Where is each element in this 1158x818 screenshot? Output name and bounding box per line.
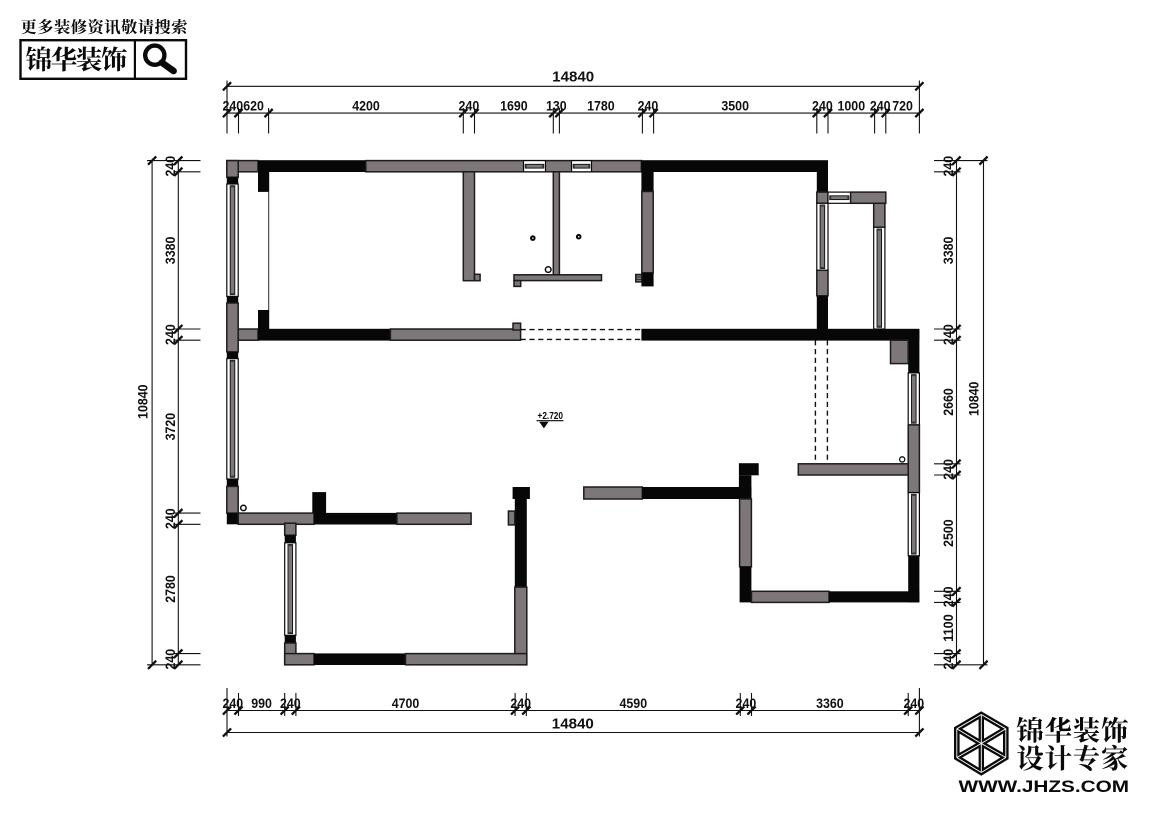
svg-text:720: 720 <box>892 98 913 113</box>
svg-text:1780: 1780 <box>587 98 615 113</box>
svg-text:3380: 3380 <box>163 237 178 265</box>
svg-text:240: 240 <box>812 98 833 113</box>
svg-text:3500: 3500 <box>721 98 749 113</box>
svg-text:240: 240 <box>941 649 956 670</box>
svg-text:WWW.JHZS.COM: WWW.JHZS.COM <box>959 777 1130 796</box>
svg-text:2780: 2780 <box>163 575 178 603</box>
svg-text:240: 240 <box>870 98 891 113</box>
svg-text:240: 240 <box>941 324 956 345</box>
svg-text:240: 240 <box>459 98 480 113</box>
svg-text:1000: 1000 <box>838 98 866 113</box>
svg-text:2660: 2660 <box>941 388 956 416</box>
svg-text:10840: 10840 <box>967 382 982 417</box>
svg-text:240: 240 <box>736 696 757 711</box>
svg-text:4200: 4200 <box>352 98 380 113</box>
svg-text:130: 130 <box>546 98 567 113</box>
svg-text:3720: 3720 <box>163 413 178 441</box>
svg-text:240: 240 <box>280 696 301 711</box>
svg-text:1690: 1690 <box>500 98 528 113</box>
svg-text:990: 990 <box>251 696 272 711</box>
svg-text:14840: 14840 <box>552 69 594 86</box>
svg-text:620: 620 <box>243 98 264 113</box>
svg-text:4590: 4590 <box>620 696 648 711</box>
svg-text:10840: 10840 <box>135 384 150 419</box>
svg-text:240: 240 <box>163 508 178 529</box>
svg-text:3380: 3380 <box>941 237 956 265</box>
svg-text:240: 240 <box>222 696 243 711</box>
svg-text:4700: 4700 <box>392 696 420 711</box>
svg-text:240: 240 <box>163 324 178 345</box>
svg-text:240: 240 <box>941 459 956 480</box>
svg-text:240: 240 <box>163 649 178 670</box>
svg-text:240: 240 <box>510 696 531 711</box>
svg-text:240: 240 <box>222 98 243 113</box>
svg-text:240: 240 <box>903 696 924 711</box>
svg-text:3360: 3360 <box>816 696 844 711</box>
svg-text:240: 240 <box>638 98 659 113</box>
svg-text:1100: 1100 <box>941 614 956 642</box>
svg-text:240: 240 <box>941 586 956 607</box>
svg-text:14840: 14840 <box>552 716 594 733</box>
svg-text:2500: 2500 <box>941 519 956 547</box>
svg-text:240: 240 <box>163 156 178 177</box>
svg-text:240: 240 <box>941 156 956 177</box>
